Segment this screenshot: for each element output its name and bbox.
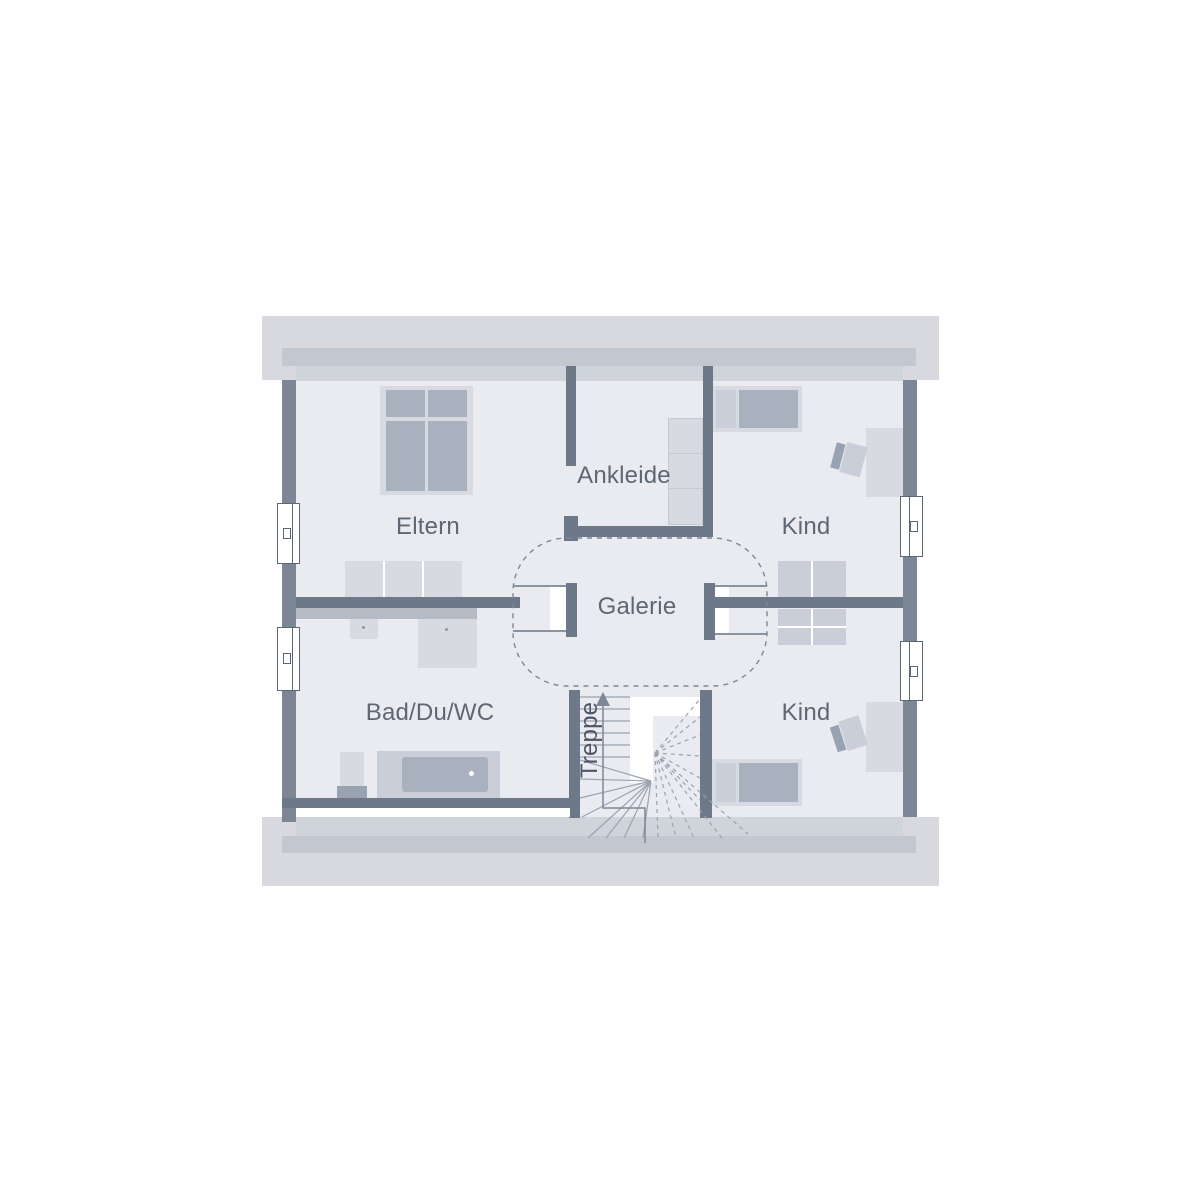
sideboard: [345, 561, 462, 597]
window-mullion: [292, 628, 293, 690]
window-handle: [910, 521, 918, 532]
room-label-bad: Bad/Du/WC: [366, 699, 495, 727]
shower-drain: [445, 628, 448, 631]
bed-pillow: [716, 763, 736, 802]
bed-pillow: [716, 390, 736, 428]
bed-pillow: [428, 390, 467, 417]
window-handle: [283, 528, 291, 539]
threshold-line: [715, 633, 767, 635]
threshold-line: [715, 585, 767, 587]
room-label-treppe: Treppe: [576, 702, 604, 778]
bathtub-drain: [469, 771, 474, 776]
wall-bad-bottom: [282, 798, 580, 808]
window-handle: [910, 666, 918, 677]
inner-eave-strip-bottom: [296, 817, 903, 836]
wall-ankleide-left: [566, 366, 576, 466]
shower: [418, 619, 477, 668]
exterior-wall-right: [903, 380, 917, 817]
sink: [350, 619, 378, 639]
window-symbol: [277, 503, 300, 564]
dresser-divider: [811, 561, 813, 597]
floor-plan: Eltern Ankleide Kind Galerie Bad/Du/WC K…: [0, 0, 1200, 1200]
inner-eave-strip-top: [296, 366, 903, 381]
wardrobe-shelf-line: [668, 453, 703, 454]
desk: [866, 702, 903, 772]
room-label-galerie: Galerie: [598, 593, 677, 621]
sideboard-divider: [422, 561, 424, 597]
bed-mattress: [739, 390, 798, 428]
wall-stub: [564, 516, 578, 541]
threshold-line: [513, 630, 566, 632]
window-mullion: [292, 504, 293, 563]
window-handle: [283, 653, 291, 664]
bed-mattress: [739, 763, 798, 802]
window-symbol: [900, 496, 923, 557]
bathtub: [402, 757, 488, 792]
room-label-kind-top: Kind: [782, 513, 831, 541]
bed-mattress: [428, 421, 467, 491]
knee-wall-top: [282, 348, 916, 366]
wall-stub-galerie-right: [704, 583, 715, 640]
wall-eltern-bad: [296, 597, 520, 608]
wall-kind-kind: [715, 597, 903, 608]
sideboard-divider: [383, 561, 385, 597]
wardrobe: [668, 418, 703, 525]
wall-ankleide-bottom: [566, 526, 712, 537]
wall-stub-galerie-left: [566, 583, 577, 637]
threshold-line: [513, 585, 566, 587]
wardrobe-shelf-line: [668, 488, 703, 489]
stair-landing: [630, 697, 653, 783]
door-opening: [550, 587, 566, 631]
exterior-wall-left: [282, 380, 296, 822]
toilet: [340, 752, 364, 788]
vanity-counter: [296, 608, 477, 619]
room-label-ankleide: Ankleide: [577, 462, 671, 490]
door-opening: [715, 608, 729, 633]
sink-drain: [362, 626, 365, 629]
room-label-eltern: Eltern: [396, 513, 460, 541]
eave-gap: [296, 808, 570, 817]
door-opening: [715, 587, 729, 597]
wall-ankleide-kind: [703, 366, 713, 537]
dresser-divider: [778, 626, 846, 628]
window-symbol: [277, 627, 300, 691]
bed-pillow: [386, 390, 425, 417]
desk: [866, 428, 903, 497]
room-label-kind-bottom: Kind: [782, 699, 831, 727]
wall-stairwell-right: [700, 690, 712, 818]
bed-mattress: [386, 421, 425, 491]
window-symbol: [900, 641, 923, 701]
knee-wall-bottom: [282, 836, 916, 853]
